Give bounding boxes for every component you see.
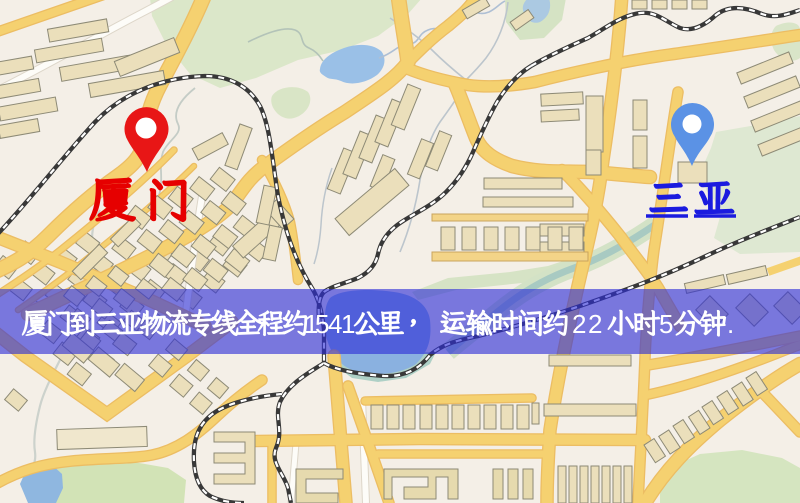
svg-text:5: 5	[659, 309, 673, 339]
svg-text:1: 1	[341, 309, 355, 339]
svg-text:2: 2	[572, 309, 586, 339]
svg-text:2: 2	[588, 309, 602, 339]
svg-text:.: .	[727, 309, 734, 339]
